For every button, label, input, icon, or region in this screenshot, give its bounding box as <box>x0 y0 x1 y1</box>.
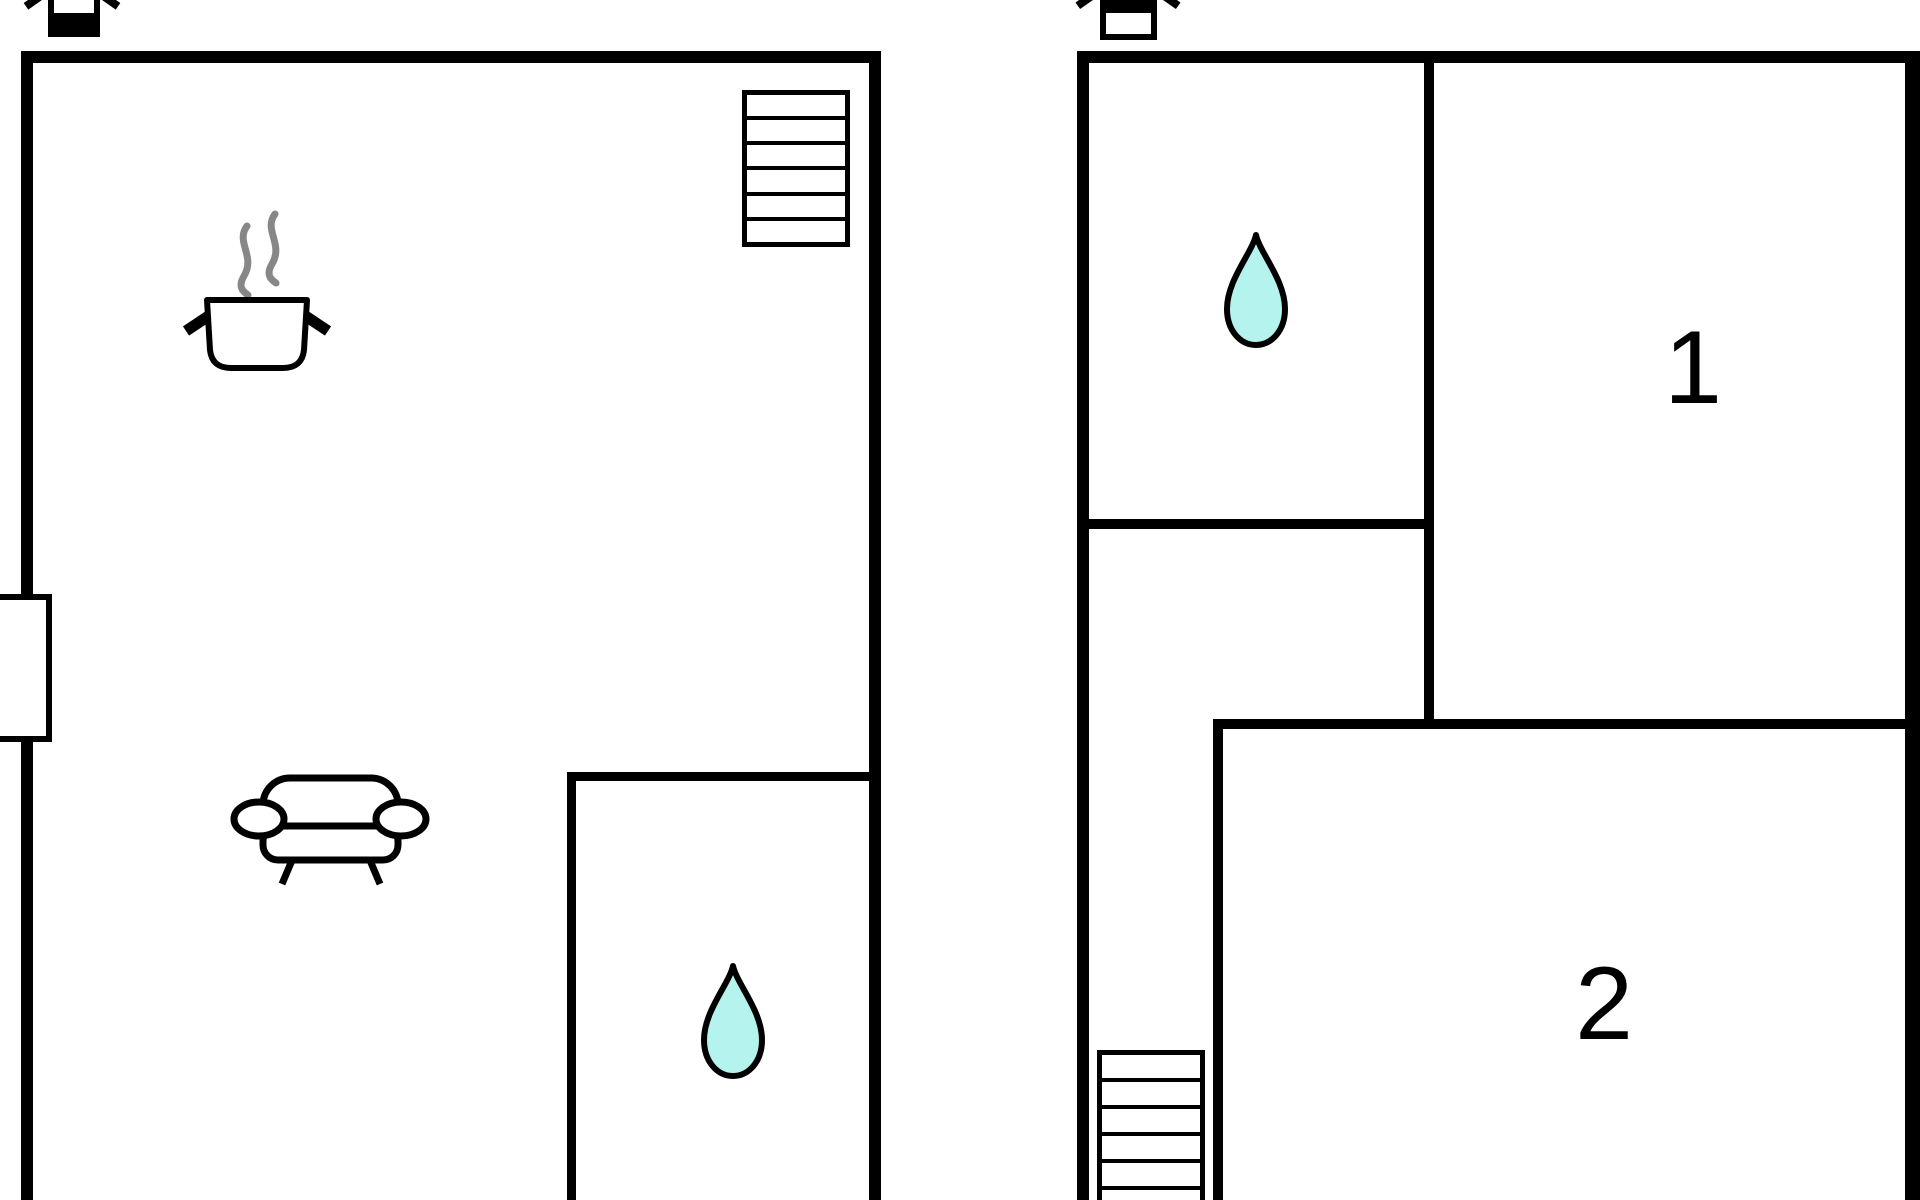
water-drop-shape <box>1227 235 1285 345</box>
stair-tread <box>1102 1055 1200 1078</box>
stair-tread <box>1102 1082 1200 1105</box>
floor-b-bathroom-bottom-wall <box>1089 519 1434 529</box>
stair-tread <box>1102 1109 1200 1132</box>
stair-tread <box>1102 1190 1200 1200</box>
room-1-label: 1 <box>1593 310 1793 426</box>
floor-b-top-wall <box>1077 51 1918 63</box>
roof-eave-left-icon <box>1076 0 1097 9</box>
floor-b-room1-left-wall <box>1424 63 1434 729</box>
floor-b-room2-left-wall <box>1213 719 1223 1200</box>
stair-tread <box>1102 1163 1200 1186</box>
floor-b-left-wall <box>1077 51 1089 1200</box>
floor-b-plan: 1 2 <box>0 0 1920 1200</box>
floor-plan-canvas: 1 2 <box>0 0 1920 1200</box>
story-icon-upper-story-filled <box>1100 0 1157 13</box>
water-drop-icon <box>1221 230 1291 350</box>
roof-eave-right-icon <box>1160 0 1181 9</box>
floor-b-room2-top-wall <box>1213 719 1905 729</box>
staircase-icon <box>1097 1050 1205 1200</box>
floor-b-right-wall <box>1905 51 1920 1200</box>
story-icon-bottom-side <box>1100 34 1157 40</box>
stair-tread <box>1102 1136 1200 1159</box>
room-2-label: 2 <box>1504 946 1704 1062</box>
